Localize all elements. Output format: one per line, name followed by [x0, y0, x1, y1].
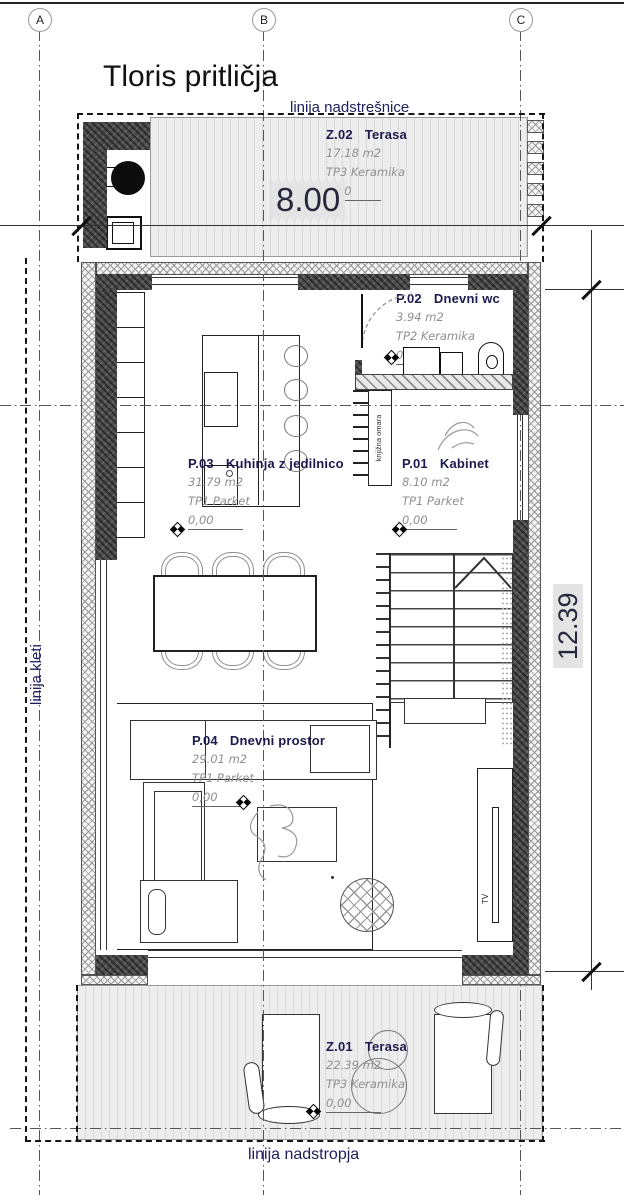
- wall-left-segment: [96, 290, 117, 560]
- window-top-large: [152, 277, 298, 285]
- tv-label: TV: [481, 894, 490, 904]
- room-label-z01: Z.01Terasa 22.39 m2 TP3 Keramika 0,00: [326, 1038, 407, 1113]
- dining-table: [153, 575, 317, 652]
- grill-icon: [111, 161, 145, 195]
- canopy-dashed-line-right: [542, 113, 544, 262]
- insulation-bottom-left: [81, 975, 148, 985]
- floor-plan-sheet: A B C Tloris pritličja linija nadstrešni…: [0, 0, 624, 1200]
- tv-screen: [492, 807, 499, 923]
- room-title: Z.01Terasa: [326, 1038, 407, 1055]
- lounge-chair-pillow: [148, 889, 166, 935]
- wall-bottom-segment: [96, 955, 148, 975]
- basement-line-label: linija kleti: [28, 644, 45, 705]
- upper-dashed-line-left: [76, 985, 78, 1142]
- wall-bottom-segment: [462, 955, 528, 975]
- upper-dashed-line-bottom: [25, 1140, 545, 1142]
- insulation-bottom-right: [462, 975, 541, 985]
- page-title: Tloris pritličja: [103, 60, 278, 94]
- bar-stool: [284, 379, 308, 401]
- bar-stool: [284, 345, 308, 367]
- width-dimension-value: 8.00: [271, 181, 345, 219]
- dimension-extension-top: [545, 289, 624, 290]
- canopy-line-label: linija nadstrešnice: [290, 99, 409, 116]
- bar-stool: [284, 415, 308, 437]
- wall-top-segment: [298, 274, 410, 290]
- staircase: [390, 553, 513, 703]
- wall-top-segment: [468, 274, 528, 290]
- coffee-table: [257, 807, 337, 862]
- sun-lounger: [434, 1014, 492, 1114]
- tv-cabinet: TV: [477, 768, 513, 942]
- canopy-dashed-line-left: [77, 113, 79, 262]
- wc-partition-wall: [355, 374, 513, 390]
- lounge-chair: [140, 880, 238, 943]
- room-title: P.01Kabinet: [402, 455, 489, 472]
- room-title: Z.02Terasa: [326, 126, 407, 143]
- room-title: P.03Kuhinja z jedilnico: [188, 455, 344, 472]
- grid-bubble-c: C: [509, 8, 533, 32]
- bookshelf-label: knjižna omara: [374, 393, 383, 483]
- window-bottom-sliding: [148, 950, 462, 958]
- wc-vanity-cabinet: [403, 347, 440, 377]
- dimension-line-height: [591, 230, 592, 990]
- outdoor-counter-horizontal: [83, 122, 150, 150]
- basement-dashed-line: [25, 258, 27, 1142]
- stair-bookshelf-teeth: [376, 553, 391, 748]
- dimension-line-width: [0, 225, 624, 226]
- upper-dashed-line-right: [542, 985, 544, 1142]
- height-dimension-value: 12.39: [553, 584, 583, 668]
- room-title: P.02Dnevni wc: [396, 290, 500, 307]
- lounger-head-pillow: [434, 1002, 492, 1018]
- grid-axis-b: [263, 30, 264, 1195]
- plant-dot: [331, 876, 334, 879]
- grid-bubble-a: A: [28, 8, 52, 32]
- stair-wall-texture: [501, 556, 513, 746]
- stair-landing: [404, 698, 486, 724]
- stair-flight-left: [390, 553, 454, 703]
- room-label-p03: P.03Kuhinja z jedilnico 31.79 m2 TP1 Par…: [188, 455, 344, 530]
- wall-right-segment: [513, 290, 528, 415]
- window-left-glazing: [100, 560, 107, 950]
- plant-icon: [340, 878, 394, 932]
- window-top-small: [410, 277, 468, 285]
- grid-axis-horizontal-lower: [10, 1128, 624, 1129]
- dimension-extension-bottom: [545, 971, 624, 972]
- page-top-rule: [0, 2, 624, 4]
- toilet-bowl: [486, 355, 498, 369]
- wall-top-segment: [96, 274, 152, 290]
- room-label-p01: P.01Kabinet 8.10 m2 TP1 Parket 0,00: [402, 455, 489, 530]
- room-title: P.04Dnevni prostor: [192, 732, 325, 749]
- insulation-right: [528, 262, 541, 975]
- room-label-p04: P.04Dnevni prostor 29.01 m2 TP1 Parket 0…: [192, 732, 325, 807]
- wall-right-segment: [513, 520, 528, 955]
- kitchen-sink: [204, 372, 238, 427]
- insulation-left: [81, 262, 96, 975]
- grid-bubble-b: B: [252, 8, 276, 32]
- sun-lounger: [262, 1014, 320, 1113]
- upper-floor-line-label: linija nadstropja: [248, 1146, 359, 1164]
- wc-door-jamb: [355, 360, 362, 374]
- grid-axis-a: [39, 30, 40, 1195]
